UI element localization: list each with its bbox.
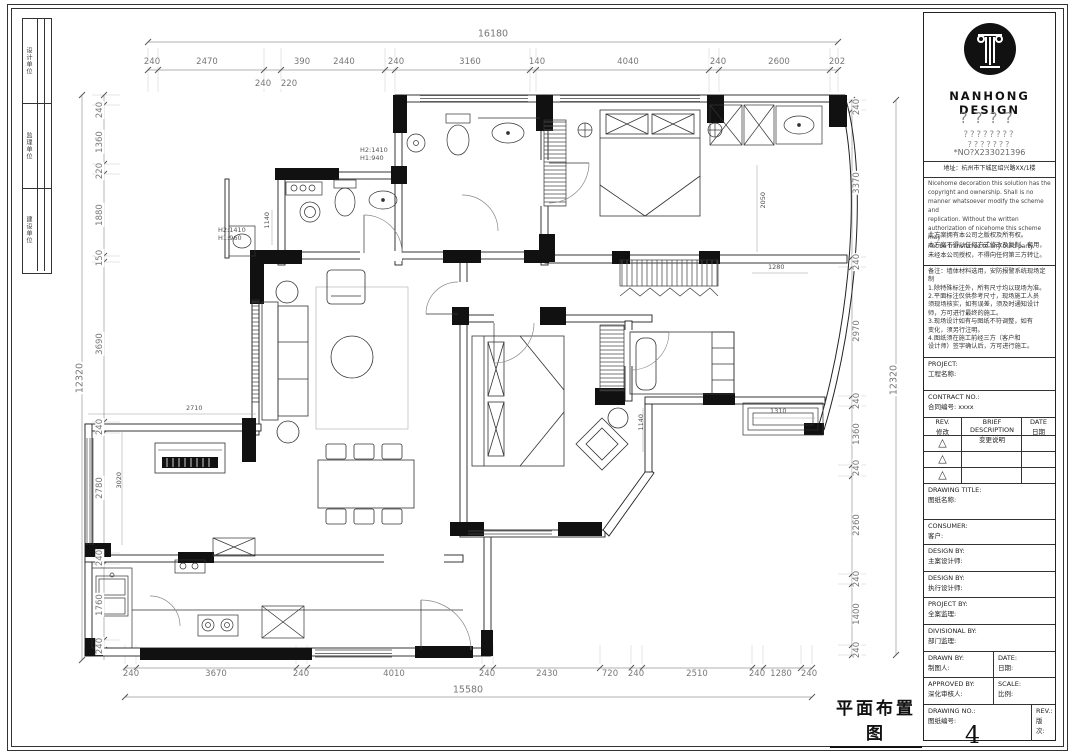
dim-label: 3670 xyxy=(204,670,228,679)
notes: 备注：墙体材料选用，安防报警系统现场定制 1.除特殊标注外，所有尺寸均以现场为准… xyxy=(924,265,1055,357)
signature-cell-label: 监理单位 xyxy=(24,132,33,160)
label-closet-dim: 2050 xyxy=(759,192,767,209)
drawn-by-label: DRAWN BY: xyxy=(928,654,989,664)
dim-label: 1760 xyxy=(96,593,105,617)
label-bay-dim: 1310 xyxy=(770,407,787,415)
dim-label: 240 xyxy=(387,58,405,67)
dim-label: 1280 xyxy=(769,670,793,679)
drawing-no-label: DRAWING NO.: xyxy=(928,707,1027,717)
dim-label: 4040 xyxy=(616,58,640,67)
approved-scale-row: APPROVED BY: 深化审核人: SCALE: 比例: xyxy=(924,677,1055,704)
title-block: NANHONG DESIGN ???? ???????? ??????? *NO… xyxy=(923,12,1056,741)
rev-label: REV.: xyxy=(1036,707,1051,717)
dim-label: 240 xyxy=(800,670,818,679)
dim-label: 2440 xyxy=(332,58,356,67)
design2-row: DESIGN BY: 执行设计师: xyxy=(924,571,1055,597)
dim-label: 240 xyxy=(96,418,105,436)
dim-label: 240 xyxy=(709,58,727,67)
dim-overall-left: 12320 xyxy=(75,362,85,394)
serial-number: *NO?X233021396 xyxy=(924,148,1055,157)
label-niche-dim: 1140 xyxy=(637,414,645,431)
dim-label: 240 xyxy=(853,392,862,410)
dim-label: 3370 xyxy=(853,171,862,195)
design-by-label: DESIGN BY: xyxy=(928,547,1051,557)
disclaimer-cn: 此方案拥有本公司之版权及所有权。 本方案不得以任何方式修改及复制、套用， 未经本… xyxy=(928,231,1053,261)
signature-cell: 建设单位 xyxy=(23,189,51,271)
revision-triangle-icon: △ xyxy=(938,436,946,450)
dim-label: 1360 xyxy=(853,422,862,446)
dim-label: 240 xyxy=(96,637,105,655)
dim-label: 240 xyxy=(627,670,645,679)
dim-overall-right: 12320 xyxy=(889,364,899,396)
design-by-2-label: DESIGN BY: xyxy=(928,574,1051,584)
dim-label: 140 xyxy=(528,58,546,67)
label-laundry-dim: 1140 xyxy=(263,212,271,229)
approved-by-label: APPROVED BY: xyxy=(928,680,989,690)
consumer-label: CONSUMER: xyxy=(928,522,1051,532)
dim-overall-top: 16180 xyxy=(477,29,509,39)
dim-label: 2600 xyxy=(767,58,791,67)
signature-cell-label: 设计单位 xyxy=(24,47,33,75)
dim-label: 240 xyxy=(853,459,862,477)
revision-triangle-icon: △ xyxy=(938,452,946,466)
dim-label: 202 xyxy=(828,58,846,67)
dim-label: 240 xyxy=(478,670,496,679)
dim-label: 240 xyxy=(853,98,862,116)
design1-row: DESIGN BY: 主案设计师: xyxy=(924,544,1055,571)
dim-label: 240 xyxy=(853,641,862,659)
project-by-label: PROJECT BY: xyxy=(928,600,1051,610)
rev-col3: DATE xyxy=(1030,418,1047,426)
rev-col2: BRIEF DESCRIPTION xyxy=(970,418,1014,434)
brand-line-2: ???????? xyxy=(924,130,1055,140)
divisional-row: DIVISIONAL BY: 部门监理: xyxy=(924,624,1055,651)
dim-overall-bottom: 15580 xyxy=(452,685,484,695)
rev-table-row: △ xyxy=(924,435,1055,451)
scale-label: SCALE: xyxy=(998,680,1051,690)
dim-label: 220 xyxy=(280,80,298,89)
dim-label: 2430 xyxy=(535,670,559,679)
dimension-layer: 16180 15580 12320 12320 H2:1410 H1:940 H… xyxy=(0,0,1080,753)
company-logo xyxy=(964,23,1016,75)
rev-table-row: △ xyxy=(924,451,1055,467)
dim-label: 240 xyxy=(292,670,310,679)
dim-label: 240 xyxy=(254,80,272,89)
dim-label: 240 xyxy=(122,670,140,679)
dim-label: 720 xyxy=(601,670,619,679)
dim-label: 240 xyxy=(748,670,766,679)
label-window-dim: 1280 xyxy=(768,263,785,271)
dim-label: 390 xyxy=(293,58,311,67)
divisional-label: DIVISIONAL BY: xyxy=(928,627,1051,637)
dim-label: 220 xyxy=(96,162,105,180)
drawing-title-row: DRAWING TITLE: 图纸名称: xyxy=(924,483,1055,519)
date-label: DATE: xyxy=(998,654,1051,664)
dim-label: 3690 xyxy=(96,332,105,356)
dim-label: 2780 xyxy=(96,476,105,500)
project-by-row: PROJECT BY: 全案监理: xyxy=(924,597,1055,624)
label-piano-width: 2710 xyxy=(186,404,203,412)
dim-label: 1400 xyxy=(853,602,862,626)
dim-label: 240 xyxy=(96,101,105,119)
dim-label: 2970 xyxy=(853,319,862,343)
dim-label: 240 xyxy=(853,253,862,271)
drawing-no-row: DRAWING NO.: 图纸编号: 4 REV.: 版次: xyxy=(924,704,1055,741)
drawing-title-stamp: 平面布置图 xyxy=(830,694,922,748)
dim-label: 240 xyxy=(853,570,862,588)
contract-label: CONTRACT NO.: xyxy=(928,393,1051,403)
project-label: PROJECT: xyxy=(928,360,1051,370)
dim-label: 150 xyxy=(96,249,105,267)
label-bath-heights-top: H2:1410 H1:940 xyxy=(360,146,388,162)
drawing-title-label: DRAWING TITLE: xyxy=(928,486,1051,496)
address-row: 地址：杭州市下城区绍兴路XX/1楼 xyxy=(924,161,1055,177)
dim-label: 1880 xyxy=(96,203,105,227)
project-row: PROJECT: 工程名称: xyxy=(924,357,1055,390)
dim-label: 240 xyxy=(96,549,105,567)
drawn-date-row: DRAWN BY: 制图人: DATE: 日期: xyxy=(924,651,1055,677)
revision-triangle-icon: △ xyxy=(938,468,946,482)
label-bath-heights-left: H2:1410 H1:960 xyxy=(218,226,246,242)
dim-label: 4010 xyxy=(382,670,406,679)
signature-cell-label: 建设单位 xyxy=(24,216,33,244)
signature-strip: 设计单位 监理单位 建设单位 xyxy=(22,18,52,274)
dim-label: 2510 xyxy=(685,670,709,679)
label-piano-depth: 3020 xyxy=(115,472,123,489)
dim-label: 3160 xyxy=(458,58,482,67)
dim-label: 2260 xyxy=(853,513,862,537)
drawing-sheet: 16180 15580 12320 12320 H2:1410 H1:940 H… xyxy=(0,0,1080,753)
signature-cell: 设计单位 xyxy=(23,19,51,104)
contract-row: CONTRACT NO.: 合同编号: xxxx xyxy=(924,390,1055,417)
address-text: 地址：杭州市下城区绍兴路XX/1楼 xyxy=(943,165,1035,172)
dim-label: 2470 xyxy=(195,58,219,67)
contract-label-cn: 合同编号: xxxx xyxy=(928,403,1051,413)
consumer-row: CONSUMER: 客户: xyxy=(924,519,1055,544)
project-label-cn: 工程名称: xyxy=(928,370,1051,380)
dim-label: 1360 xyxy=(96,130,105,154)
signature-cell: 监理单位 xyxy=(23,104,51,189)
brand-line-1: ???? xyxy=(924,109,1055,127)
column-icon xyxy=(964,23,1016,75)
page-number: 4 xyxy=(954,717,991,753)
rev-table-row: △ xyxy=(924,467,1055,483)
rev-table-header: REV.修改 BRIEF DESCRIPTION变更说明 DATE日期 xyxy=(924,417,1055,435)
rev-col1: REV. xyxy=(935,418,949,426)
dim-label: 240 xyxy=(143,58,161,67)
